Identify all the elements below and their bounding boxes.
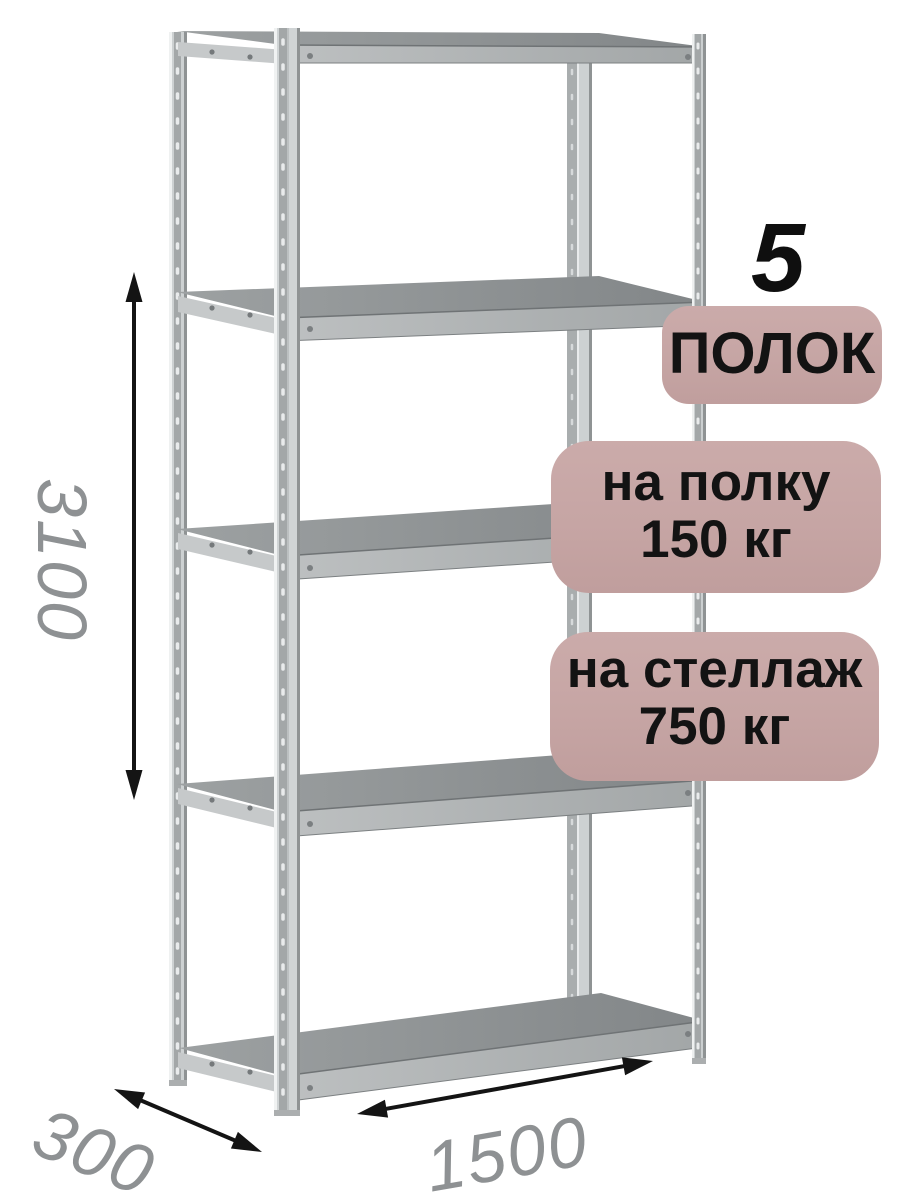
shelf-5 [178,993,705,1102]
shelf-load-line2: 150 кг [551,511,881,568]
shelf-load-badge: на полку 150 кг [551,441,881,593]
width-dimension-label: 1500 [420,1101,595,1200]
depth-dimension-label: 300 [22,1093,165,1200]
arrow-left-head [357,1100,388,1118]
arrow-right-head [622,1057,653,1075]
post-front-left [274,28,300,1116]
arrow-upleft-head [114,1089,145,1109]
depth-dimension: 300 [22,1089,262,1200]
rack-load-line2: 750 кг [550,698,879,755]
shelf-1 [177,31,705,64]
rack-illustration: 3100 300 1500 [0,0,900,1200]
rack-load-line1: на стеллаж [550,641,879,698]
height-dimension-label: 3100 [23,478,101,642]
product-image: 3100 300 1500 5 ПОЛОК на полку 150 кг на… [0,0,900,1200]
arrow-down-head [126,770,143,800]
arrow-downright-head [231,1132,262,1152]
height-dimension: 3100 [23,272,143,800]
arrow-up-head [126,272,143,302]
shelf-2 [177,276,705,341]
shelf-count-badge: ПОЛОК [662,306,882,404]
post-back-left [169,32,187,1086]
rack-load-badge: на стеллаж 750 кг [550,632,879,781]
shelf-count-label: ПОЛОК [669,321,876,386]
shelf-load-line1: на полку [551,454,881,511]
shelf-count-number: 5 [726,208,830,308]
